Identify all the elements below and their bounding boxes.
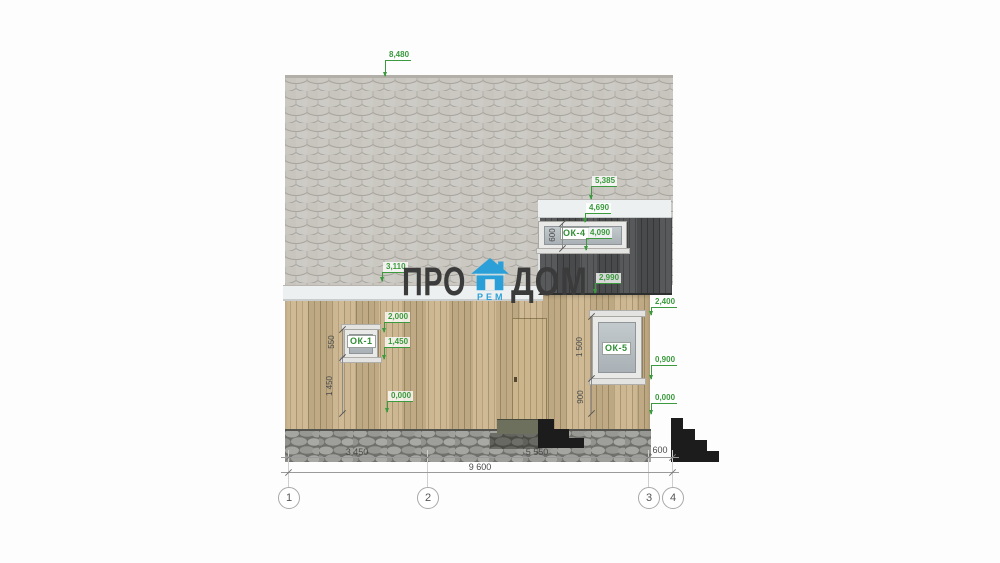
elevation-mark-ok5-sill-value: 0,900 (655, 355, 675, 364)
window-ok1-sill (340, 357, 382, 363)
door-handle-icon (514, 377, 517, 382)
axis-bubble-2: 2 (417, 487, 439, 509)
watermark-pro: ПРО (402, 262, 466, 302)
side-steps (671, 418, 719, 462)
elevation-mark-upper-eave: 5,385 (592, 176, 617, 187)
elevation-mark-ok1-sill: 1,450 (385, 337, 410, 348)
elevation-mark-ok4-top: 4,690 (586, 203, 611, 214)
vertical-dim-ok4-height: 600 (548, 215, 558, 255)
vertical-dim-ok1-height: 550 (327, 322, 337, 362)
elevation-mark-upper-eave-value: 5,385 (595, 176, 615, 185)
porch-platform (497, 419, 540, 434)
window-ok5-sill (589, 378, 646, 385)
elevation-mark-ridge-value: 8,480 (389, 50, 409, 59)
axis-bubble-4: 4 (662, 487, 684, 509)
elevation-mark-ok4-top-value: 4,690 (589, 203, 609, 212)
elevation-mark-ok1-top-value: 2,000 (388, 312, 408, 321)
axis-bubble-1: 1 (278, 487, 300, 509)
dim-label-span-2-3: 5 550 (517, 448, 557, 457)
elevation-mark-ok5-top-value: 2,400 (655, 297, 675, 306)
vertical-dim-ok5-sill-height: 900 (576, 377, 586, 417)
window-label-ok4: ОК-4 (560, 227, 589, 240)
elevation-mark-ground-left: 0,000 (388, 391, 413, 402)
dim-line-overall (281, 472, 679, 473)
house-logo-icon (471, 258, 509, 291)
elevation-mark-ridge: 8,480 (386, 50, 411, 61)
vertical-dim-ok1-sill-height: 1 450 (325, 366, 335, 406)
elevation-mark-ok4-bottom: 4,090 (587, 228, 612, 239)
dim-label-span-3-4: 600 (640, 446, 680, 455)
vertical-dim-line-ok4 (562, 223, 563, 248)
elevation-mark-ok1-top: 2,000 (385, 312, 410, 323)
dim-line-segments (281, 457, 679, 458)
vertical-dim-line-ok1 (342, 329, 343, 413)
elevation-mark-ground-right-value: 0,000 (655, 393, 675, 402)
elevation-mark-ok1-sill-value: 1,450 (388, 337, 408, 346)
elevation-mark-ground-left-value: 0,000 (391, 391, 411, 400)
elevation-mark-ok4-bottom-value: 4,090 (590, 228, 610, 237)
axis-bubble-3: 3 (638, 487, 660, 509)
vertical-dim-line-ok5 (591, 316, 592, 413)
elevation-mark-gable-bottom: 2,990 (596, 273, 621, 284)
watermark-dom: ДОМ (511, 262, 588, 302)
elevation-mark-ground-right: 0,000 (652, 393, 677, 404)
elevation-mark-ok5-sill: 0,900 (652, 355, 677, 366)
elevation-drawing: ОК-1 ОК-4 ОК-5 8,480 5,385 4,690 4,090 3… (0, 0, 1000, 563)
window-label-ok1: ОК-1 (347, 335, 376, 348)
elevation-mark-ok5-top: 2,400 (652, 297, 677, 308)
dim-label-span-1-2: 3 450 (337, 448, 377, 457)
watermark-rem: РЕМ (477, 292, 506, 302)
window-label-ok5: ОК-5 (602, 342, 631, 355)
elevation-mark-gable-bottom-value: 2,990 (599, 273, 619, 282)
dim-label-overall: 9 600 (460, 463, 500, 472)
vertical-dim-ok5-height: 1 500 (575, 327, 585, 367)
entry-door (512, 318, 547, 426)
